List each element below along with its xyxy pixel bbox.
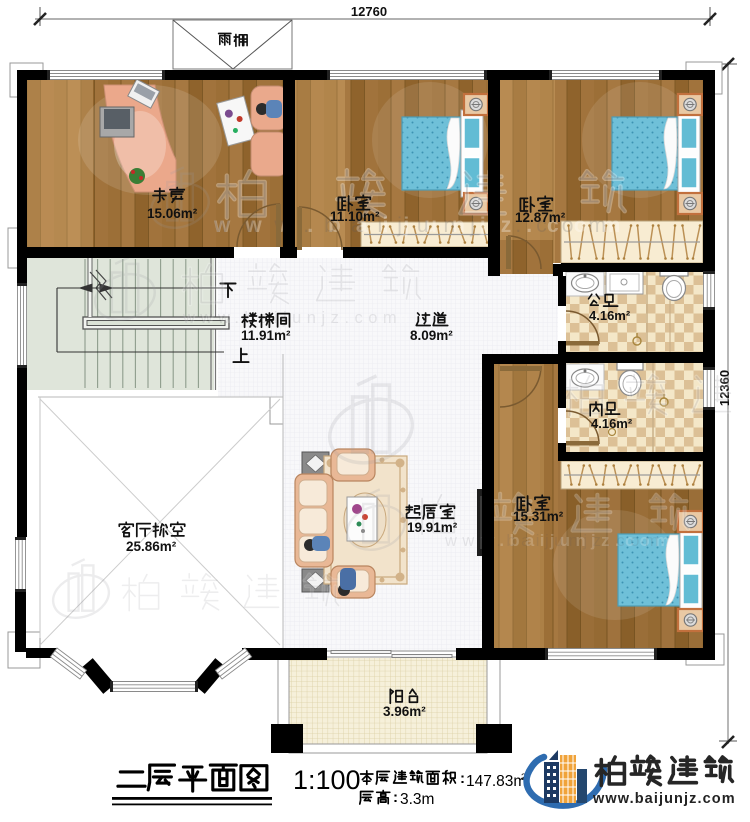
svg-text:8.09m²: 8.09m²	[410, 328, 453, 343]
svg-text:147.83m: 147.83m	[466, 773, 526, 790]
svg-text:12760: 12760	[351, 4, 387, 19]
svg-text::: :	[460, 770, 465, 787]
svg-text:19.91m²: 19.91m²	[407, 520, 458, 535]
svg-text:www.baijunjz.com: www.baijunjz.com	[182, 309, 402, 327]
svg-text:1:100: 1:100	[293, 765, 361, 795]
svg-text:3.96m²: 3.96m²	[383, 704, 426, 719]
svg-text:4.16m²: 4.16m²	[589, 308, 631, 323]
svg-text:4.16m²: 4.16m²	[591, 416, 633, 431]
svg-text:3.3m: 3.3m	[400, 791, 434, 808]
svg-text:15.06m²: 15.06m²	[147, 206, 198, 221]
svg-text:12.87m²: 12.87m²	[515, 210, 566, 225]
svg-text:11.91m²: 11.91m²	[241, 328, 291, 343]
svg-text:www.baijunjz.com: www.baijunjz.com	[592, 791, 736, 807]
svg-text::: :	[393, 789, 398, 806]
svg-text:25.86m²: 25.86m²	[126, 539, 177, 554]
svg-text:11.10m²: 11.10m²	[330, 209, 380, 224]
svg-text:15.31m²: 15.31m²	[513, 509, 564, 524]
svg-text:www.baijunjz.com: www.baijunjz.com	[444, 532, 664, 550]
